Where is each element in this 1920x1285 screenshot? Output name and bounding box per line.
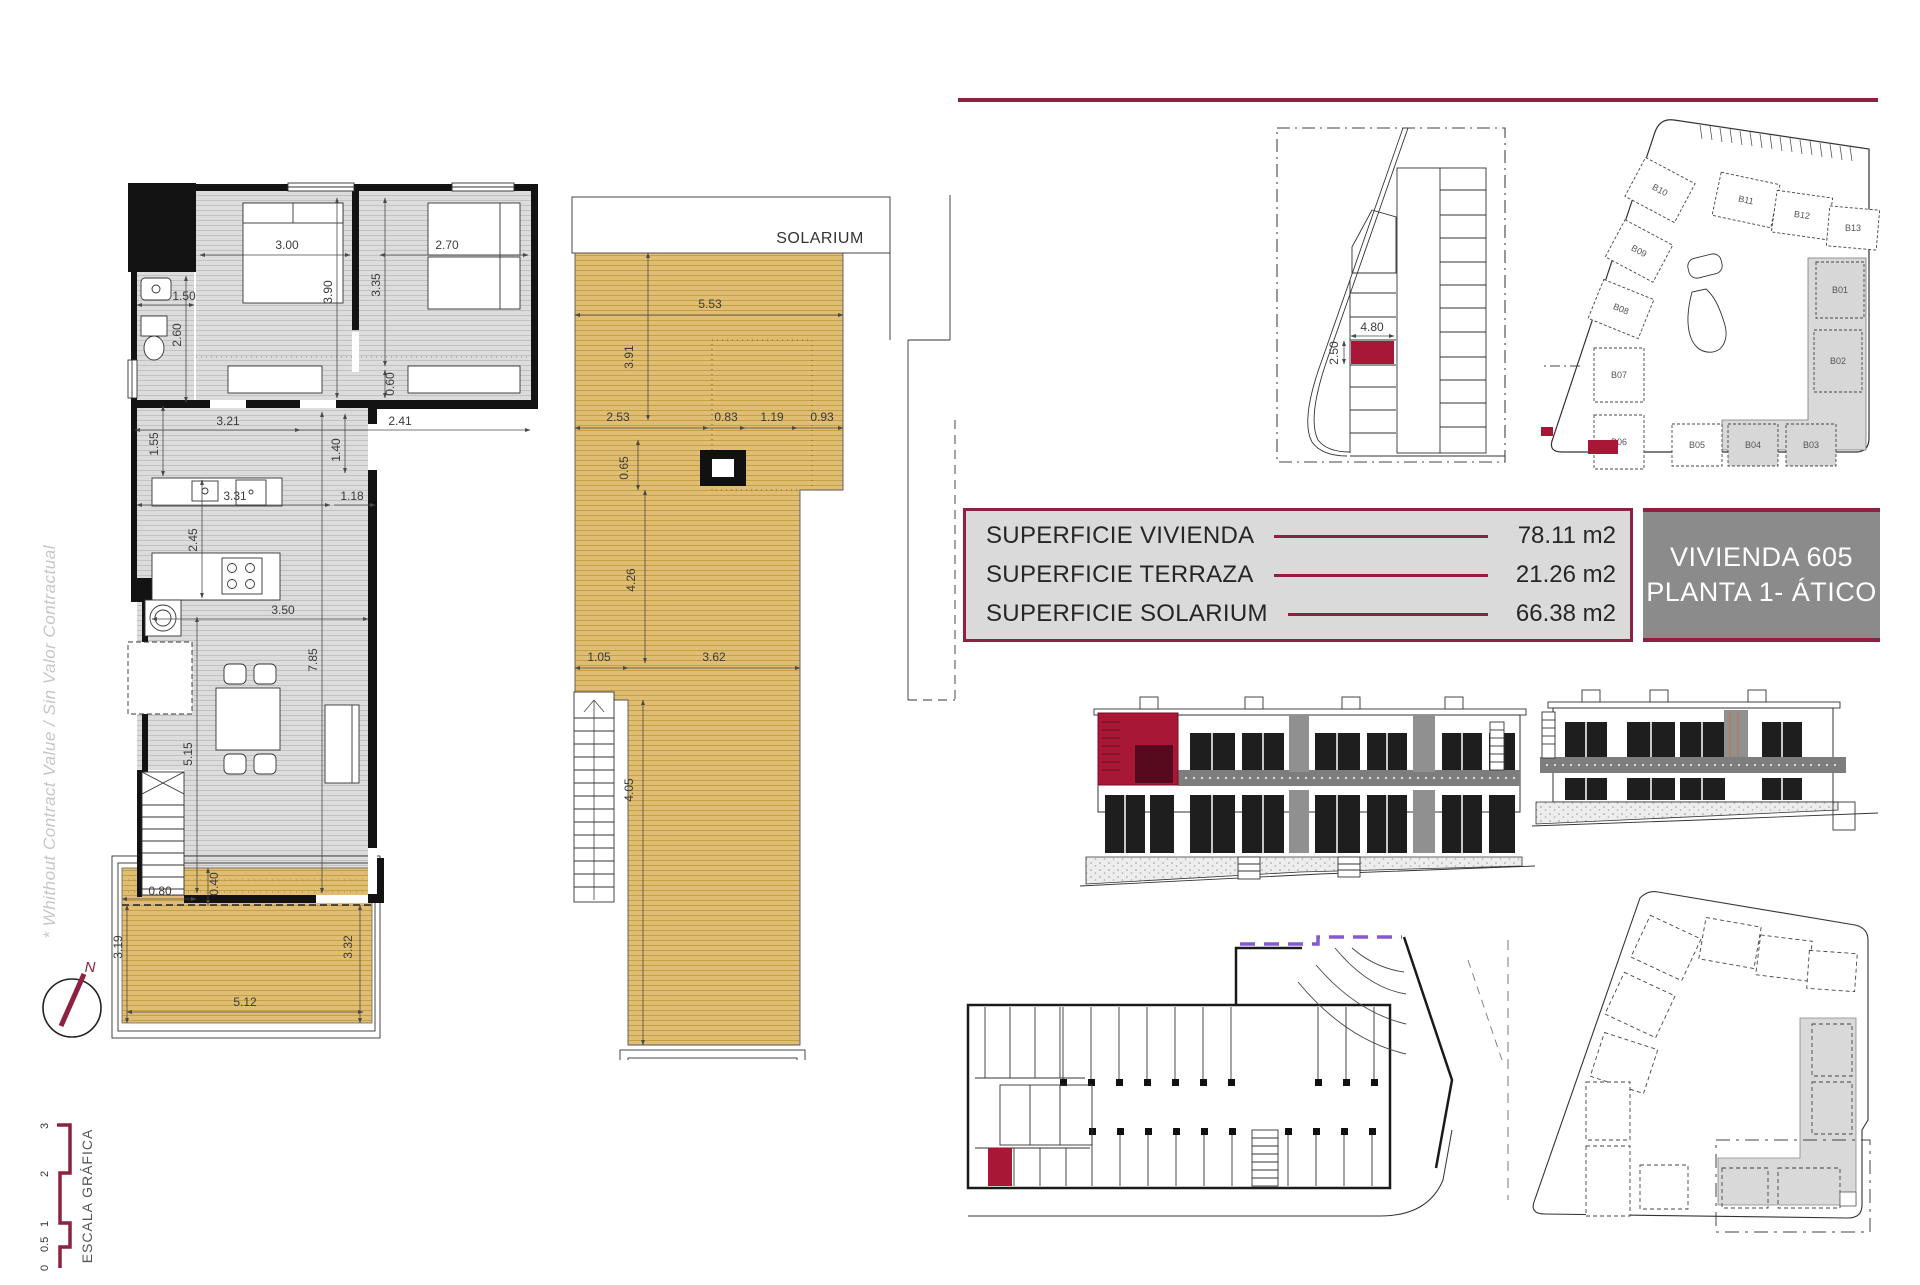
scale-tick: 3 bbox=[39, 1123, 51, 1129]
north-label: N bbox=[85, 959, 96, 976]
leader-line bbox=[1274, 535, 1488, 538]
dim-label: 1.55 bbox=[147, 432, 161, 456]
apartment-floor-plan: 3.00 2.70 3.90 3.35 0.60 1.50 2.60 3.21 … bbox=[100, 150, 550, 1060]
scale-tick: 1 bbox=[39, 1221, 51, 1227]
elevation-left bbox=[1080, 697, 1535, 886]
dim-label: 2.45 bbox=[186, 528, 200, 552]
block-label: B07 bbox=[1611, 370, 1627, 380]
leader-line bbox=[1274, 574, 1488, 577]
dim-label: 4.26 bbox=[624, 568, 638, 592]
dim-label: 3.62 bbox=[702, 650, 726, 664]
pier bbox=[1724, 710, 1748, 757]
surface-label: SUPERFICIE SOLARIUM bbox=[986, 600, 1268, 628]
dim-label: 3.90 bbox=[321, 280, 335, 304]
dim-label: 0.93 bbox=[810, 410, 834, 424]
parking-plan: 4.80 2.50 bbox=[1265, 105, 1515, 475]
boundary-dashdot bbox=[1277, 128, 1505, 462]
dim-label: 0.40 bbox=[207, 872, 221, 896]
surface-label: SUPERFICIE VIVIENDA bbox=[986, 522, 1254, 550]
dim-label: 3.21 bbox=[216, 414, 240, 428]
highlighted-elevation-unit bbox=[1098, 713, 1178, 785]
highlighted-parking-space bbox=[1351, 341, 1394, 364]
highlighted-storage bbox=[988, 1148, 1012, 1186]
title-box: VIVIENDA 605 PLANTA 1- ÁTICO bbox=[1643, 508, 1880, 642]
dim-label: 0.83 bbox=[714, 410, 738, 424]
block-label: B05 bbox=[1689, 440, 1705, 450]
garage-plan bbox=[945, 915, 1535, 1285]
table-row: SUPERFICIE SOLARIUM 66.38 m2 bbox=[966, 600, 1630, 628]
skylight bbox=[700, 450, 746, 486]
block-label: B02 bbox=[1830, 356, 1846, 366]
leader-line bbox=[1288, 613, 1488, 616]
chimneys bbox=[1140, 697, 1463, 709]
site-plan-bottom bbox=[1515, 885, 1885, 1280]
table-row: SUPERFICIE VIVIENDA 78.11 m2 bbox=[966, 522, 1630, 550]
dim-label: 1.19 bbox=[760, 410, 784, 424]
upper-windows bbox=[1565, 722, 1802, 757]
dim-label: 5.12 bbox=[233, 995, 257, 1009]
scale-title: ESCALA GRÁFICA bbox=[79, 1129, 95, 1264]
stairs-down bbox=[142, 772, 184, 895]
dim-label: 3.00 bbox=[275, 238, 299, 252]
scale-tick: 0 bbox=[39, 1265, 51, 1271]
graphic-scale: 0 0.5 1 2 3 ESCALA GRÁFICA bbox=[25, 1110, 115, 1280]
washing-machine bbox=[145, 600, 181, 636]
side-ladder bbox=[1490, 722, 1504, 770]
dim-label: 3.35 bbox=[369, 273, 383, 297]
dim-label: 5.53 bbox=[698, 297, 722, 311]
side-ladder bbox=[1542, 712, 1555, 758]
table-row: SUPERFICIE TERRAZA 21.26 m2 bbox=[966, 561, 1630, 589]
ramp-edge-dashed bbox=[1468, 960, 1502, 1060]
chimneys bbox=[1582, 690, 1766, 702]
dim-label: 3.32 bbox=[341, 935, 355, 959]
dim-label: 1.05 bbox=[587, 650, 611, 664]
scale-steps bbox=[57, 1125, 70, 1268]
ramp-dashed-purple bbox=[1240, 937, 1402, 944]
north-compass: N bbox=[30, 945, 140, 1055]
garage-walls bbox=[968, 937, 1452, 1188]
dim-label: 3.50 bbox=[271, 603, 295, 617]
dim-label: 0.60 bbox=[383, 372, 397, 396]
surface-label: SUPERFICIE TERRAZA bbox=[986, 561, 1254, 589]
surface-value: 66.38 m2 bbox=[1504, 600, 1616, 628]
elevation-right bbox=[1532, 690, 1878, 830]
compass-needle bbox=[61, 974, 84, 1026]
site-plan-key: B10 B09 B08 B11 B12 B13 B07 B06 B05 B04 … bbox=[1540, 100, 1885, 490]
dim-label: 5.15 bbox=[181, 742, 195, 766]
dim-label: 4.05 bbox=[622, 778, 636, 802]
block-label: B13 bbox=[1845, 223, 1861, 233]
building-elevations bbox=[1080, 680, 1880, 900]
wardrobe-2 bbox=[408, 366, 520, 393]
balcony-band bbox=[1540, 757, 1846, 773]
unit-title: VIVIENDA 605 bbox=[1670, 540, 1853, 575]
sofa bbox=[325, 705, 359, 783]
highlighted-stall-mini bbox=[1541, 427, 1553, 436]
plan-sheet: { "document": { "disclaimer": "* Whithou… bbox=[0, 0, 1920, 1280]
dim-label: 3.31 bbox=[223, 489, 247, 503]
dim-label: 4.80 bbox=[1360, 320, 1384, 334]
disclaimer-text: * Whithout Contract Value / Sin Valor Co… bbox=[40, 545, 60, 939]
disclaimer-note: * Whithout Contract Value / Sin Valor Co… bbox=[40, 545, 60, 975]
solarium-title: SOLARIUM bbox=[776, 230, 864, 247]
dim-label: 2.50 bbox=[1327, 341, 1341, 365]
balcony-band bbox=[1178, 770, 1520, 786]
surface-value: 78.11 m2 bbox=[1504, 522, 1616, 550]
dim-label: 7.85 bbox=[306, 648, 320, 672]
scale-tick: 2 bbox=[39, 1171, 51, 1177]
lower-windows bbox=[1565, 778, 1802, 800]
block-label: B01 bbox=[1832, 285, 1848, 295]
dim-label: 1.18 bbox=[340, 489, 364, 503]
compass-circle bbox=[43, 979, 101, 1037]
dim-label: 0.80 bbox=[148, 884, 172, 898]
solarium-plan: SOLARIUM 5.53 bbox=[555, 150, 995, 1060]
block-label: B03 bbox=[1803, 440, 1819, 450]
dim-label: 0.65 bbox=[617, 456, 631, 480]
dim-label: 2.60 bbox=[170, 323, 184, 347]
street-edge bbox=[968, 1130, 1452, 1216]
dim-label: 3.91 bbox=[622, 345, 636, 369]
scale-ticks: 0 0.5 1 2 3 bbox=[39, 1123, 51, 1271]
wardrobe-1 bbox=[228, 366, 322, 393]
floor-title: PLANTA 1- ÁTICO bbox=[1646, 575, 1877, 610]
stone-base bbox=[1086, 857, 1522, 884]
block-label: B04 bbox=[1745, 440, 1761, 450]
solarium-deck bbox=[575, 253, 843, 1045]
corner-notch bbox=[1840, 1192, 1856, 1206]
surface-value: 21.26 m2 bbox=[1504, 561, 1616, 589]
parking-geometry bbox=[1308, 128, 1505, 456]
highlighted-unit bbox=[1588, 440, 1618, 454]
parking-stalls bbox=[1063, 1007, 1374, 1186]
garage-stairs bbox=[1252, 1130, 1278, 1186]
closet-dashed bbox=[128, 642, 192, 714]
stove bbox=[222, 558, 262, 594]
dim-label: 2.70 bbox=[435, 238, 459, 252]
dim-label: 1.40 bbox=[329, 438, 343, 462]
columns bbox=[1060, 1079, 1378, 1135]
surface-table: SUPERFICIE VIVIENDA 78.11 m2 SUPERFICIE … bbox=[963, 508, 1633, 642]
solarium-stairs bbox=[574, 692, 614, 902]
dim-label: 1.50 bbox=[172, 289, 196, 303]
dim-label: 2.41 bbox=[388, 414, 412, 428]
dim-label: 2.53 bbox=[606, 410, 630, 424]
scale-tick: 0.5 bbox=[39, 1237, 51, 1252]
